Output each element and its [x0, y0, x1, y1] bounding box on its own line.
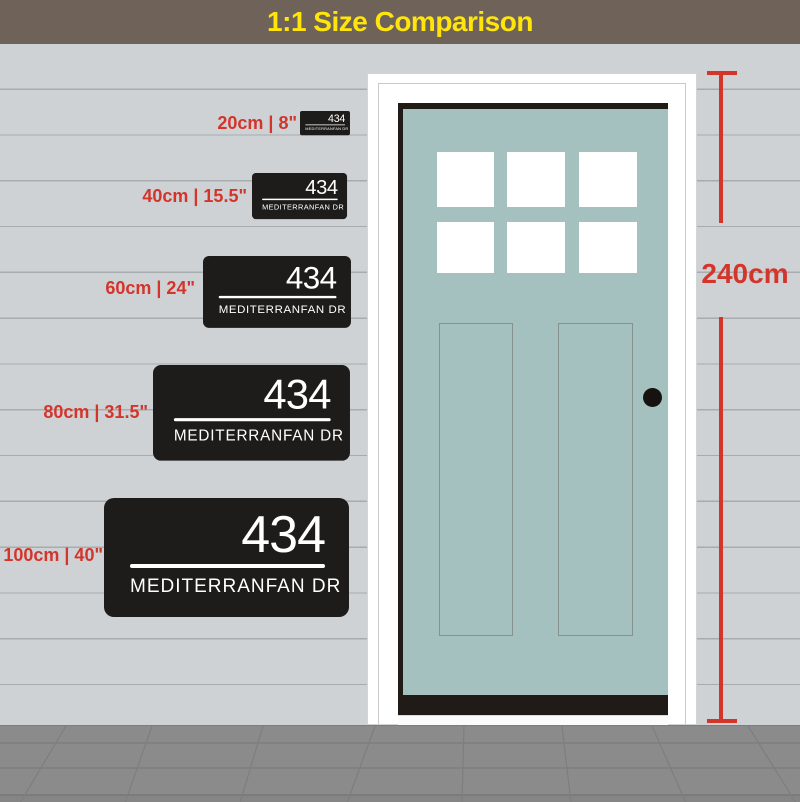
sign-divider-line: [174, 418, 331, 421]
measure-line-lower-segment: [719, 317, 723, 721]
sign-number: 434: [174, 376, 331, 414]
door-knob: [643, 388, 662, 407]
sign-number: 434: [219, 264, 337, 293]
sign-number: 434: [305, 114, 345, 124]
measure-line-upper-segment: [719, 73, 723, 223]
door-window-pane: [579, 152, 637, 207]
floor-tile-lines: [0, 726, 800, 802]
sign-street-name: MEDITERRANFAN DR: [219, 303, 337, 316]
sign-divider-line: [262, 199, 338, 201]
door-height-label: 240cm: [698, 258, 792, 290]
door-threshold: [398, 715, 668, 725]
size-label-100cm: 100cm | 40": [3, 544, 103, 566]
size-comparison-graphic: 1:1 Size Comparison 2: [0, 0, 800, 802]
door-panel: [439, 323, 513, 636]
address-sign-100cm: 434 MEDITERRANFAN DR: [104, 498, 349, 617]
door-window-pane: [437, 152, 494, 207]
sign-street-name: MEDITERRANFAN DR: [305, 127, 345, 131]
sign-street-name: MEDITERRANFAN DR: [130, 576, 325, 598]
header-bar: 1:1 Size Comparison: [0, 0, 800, 44]
sign-number: 434: [130, 512, 325, 560]
door-window-pane: [507, 152, 565, 207]
address-sign-20cm: 434 MEDITERRANFAN DR: [300, 111, 350, 135]
sign-street-name: MEDITERRANFAN DR: [174, 428, 331, 446]
address-sign-80cm: 434 MEDITERRANFAN DR: [153, 365, 350, 461]
sign-street-name: MEDITERRANFAN DR: [262, 203, 338, 212]
size-label-20cm: 20cm | 8": [217, 112, 297, 134]
address-sign-60cm: 434 MEDITERRANFAN DR: [203, 256, 351, 328]
sign-number: 434: [262, 178, 338, 197]
sign-divider-line: [219, 296, 337, 298]
size-label-80cm: 80cm | 31.5": [43, 401, 148, 423]
door-window-pane: [507, 222, 565, 273]
address-sign-40cm: 434 MEDITERRANFAN DR: [252, 173, 347, 219]
door-window-pane: [579, 222, 637, 273]
measure-line-bottom-cap: [707, 719, 737, 723]
door-panel: [558, 323, 633, 636]
size-label-40cm: 40cm | 15.5": [142, 185, 247, 207]
sign-divider-line: [130, 564, 325, 568]
page-title: 1:1 Size Comparison: [267, 6, 533, 38]
door-window-pane: [437, 222, 494, 273]
size-label-60cm: 60cm | 24": [105, 277, 195, 299]
sign-divider-line: [305, 124, 345, 125]
floor-tiles: [0, 725, 800, 802]
